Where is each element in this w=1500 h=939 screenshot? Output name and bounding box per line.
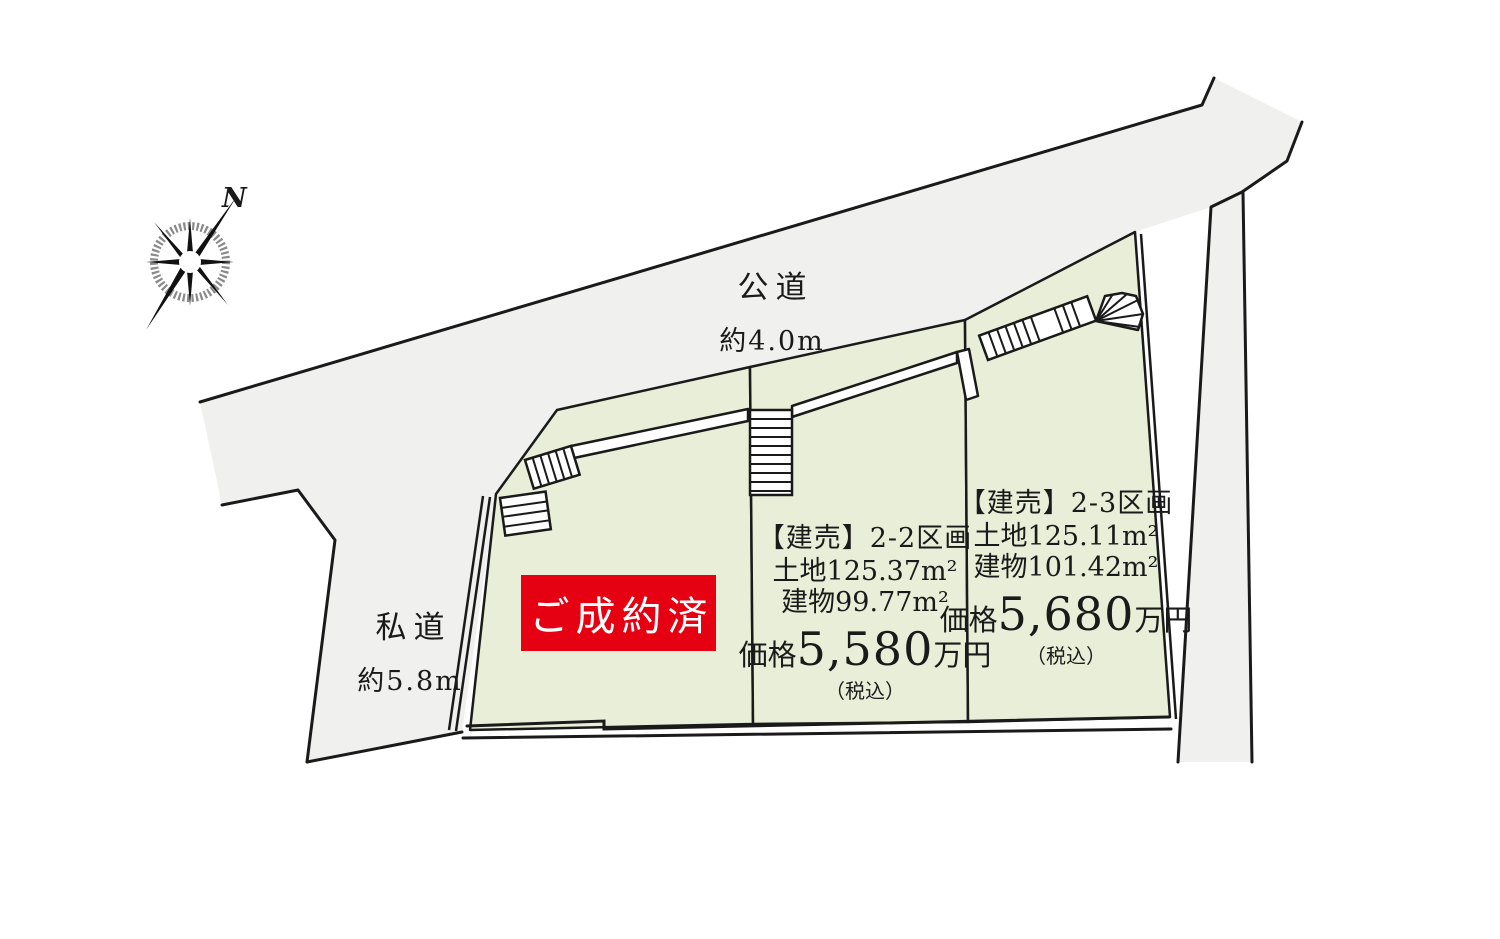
public-road-name: 公道 [672,262,872,307]
site-plan-page: N 公道 約4.0m 私道 約5.8m ご成約済 【建売】2-2区画 土地125… [0,0,1500,939]
stairs-symbol-middle [750,410,792,495]
private-road-name: 私道 [310,602,510,647]
public-road-width: 約4.0m [672,319,872,358]
lot-2-3-price-label: 価格 [940,597,998,639]
compass-rose-icon [146,196,237,330]
lot-2-2-price-value: 5,580 [797,622,934,676]
lot-2-3-price-line: 価格 5,680 万円 [938,587,1194,641]
private-road-width: 約5.8m [310,659,510,698]
site-plan-drawing [0,0,1500,939]
sold-status-text: ご成約済 [524,584,714,642]
lot-2-3-land-area: 土地125.11m² [938,521,1194,552]
private-road-label: 私道 約5.8m [310,602,510,698]
sold-status-badge: ご成約済 [521,575,716,651]
south-boundary-lower-line [463,729,1171,738]
lot-2-3-price-value: 5,680 [998,587,1135,641]
lot-2-3-info: 【建売】2-3区画 土地125.11m² 建物101.42m² 価格 5,680… [938,487,1194,669]
compass-center [179,251,201,273]
lot-2-3-title: 【建売】2-3区画 [938,487,1194,521]
lot-2-2-price-label: 価格 [739,632,797,674]
lot-2-3-tax-note: （税込） [938,643,1194,669]
lot-2-2-tax-note: （税込） [737,678,993,704]
lot-2-3-building-area: 建物101.42m² [938,552,1194,583]
stairs-symbol-west-lower [500,492,551,536]
compass-north-label: N [222,183,247,214]
lot-2-3-price-unit: 万円 [1134,597,1192,639]
public-road-label: 公道 約4.0m [672,262,872,358]
